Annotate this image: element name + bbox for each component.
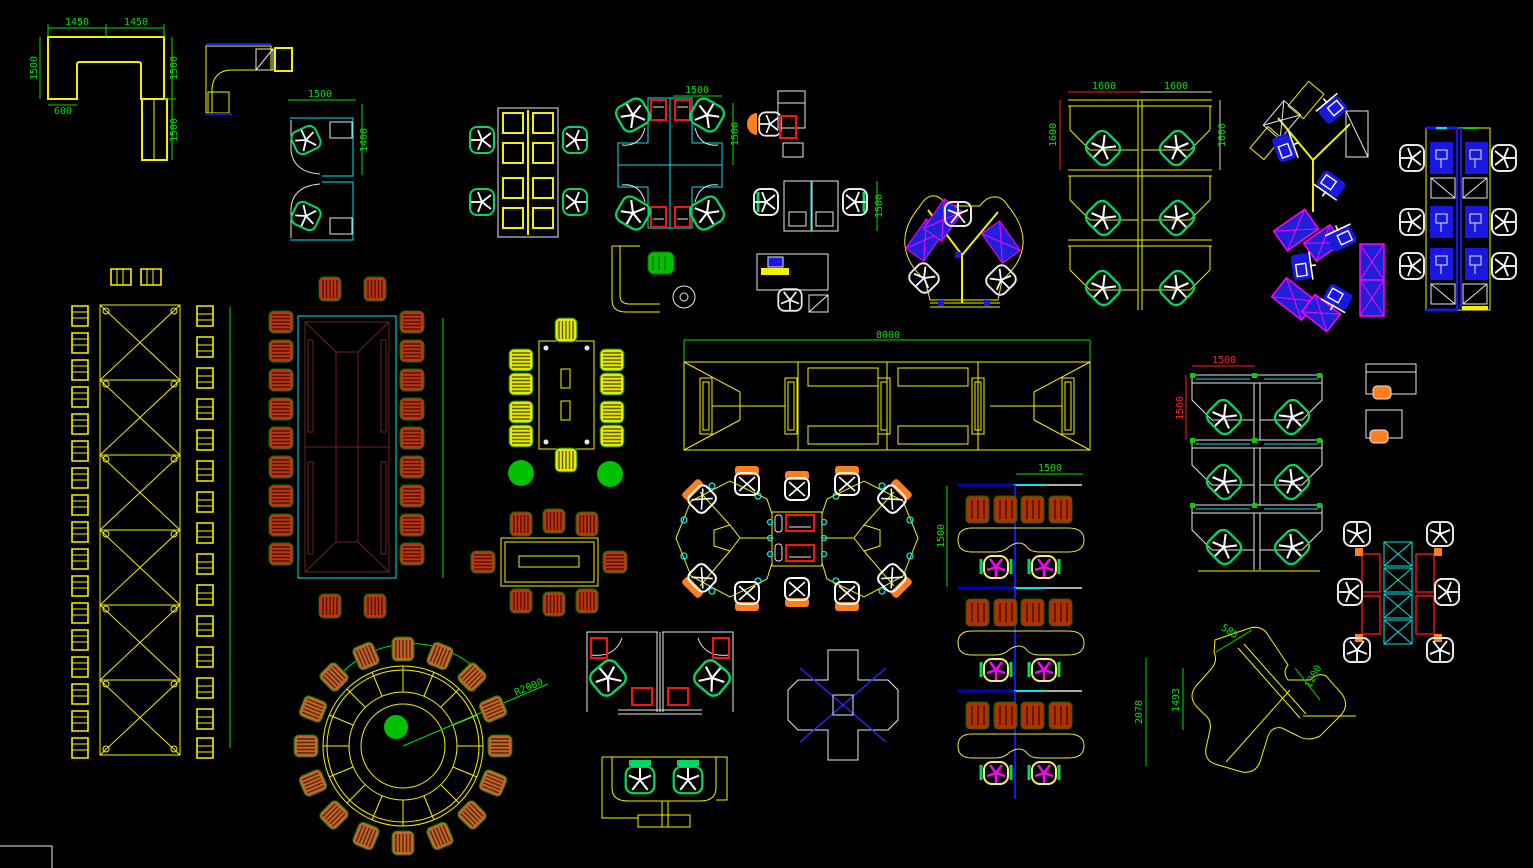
dimension-label: 1600 [1217, 123, 1228, 147]
bench-chair[interactable] [111, 269, 131, 285]
seat-row-right[interactable] [197, 306, 213, 758]
block-workstation-grid-6-white[interactable]: 1500 1500 [1175, 355, 1322, 571]
drawing-edge-line [0, 846, 52, 868]
dimension-label: 1200 [1303, 664, 1324, 690]
office-chair[interactable] [1029, 556, 1059, 578]
dimension-label: 1500 [1175, 396, 1186, 420]
dimension-label: 1500 [29, 56, 40, 80]
privacy-panels [1272, 209, 1384, 331]
dimension-label: 600 [54, 106, 72, 117]
office-chair[interactable] [687, 194, 727, 233]
dimension-label: 1500 [936, 524, 947, 548]
armchair[interactable] [1373, 386, 1391, 399]
dimension-label: 1500 [1212, 355, 1236, 366]
truss-bracing [100, 305, 180, 755]
block-l-workstation-pair[interactable]: 1500 1400 [288, 89, 370, 240]
cabinets [966, 496, 1072, 523]
block-single-desk[interactable] [747, 91, 805, 157]
office-chair[interactable] [289, 200, 323, 233]
dimension-label: 1500 [874, 194, 885, 218]
block-u-shaped-desk[interactable]: 1450 1450 1500 600 1500 1500 [29, 17, 180, 160]
office-chair[interactable] [906, 260, 941, 295]
dimension-label: 585 [1219, 622, 1240, 641]
dimension-label: 1500 [730, 122, 741, 146]
pod-center-unit [768, 512, 827, 566]
block-truss-with-seating[interactable] [72, 269, 230, 758]
office-chair[interactable] [563, 189, 587, 215]
block-reception-l-desk[interactable] [206, 44, 292, 114]
block-y-cluster-blue[interactable] [905, 196, 1023, 307]
block-reception-counter[interactable] [612, 246, 695, 312]
office-chair[interactable] [674, 767, 703, 793]
block-conference-yellow[interactable] [508, 318, 624, 487]
pod-chair[interactable] [735, 582, 759, 611]
dimension: 1500 [874, 181, 885, 231]
dimension: 585 1200 2078 1493 [1134, 622, 1324, 766]
office-chair[interactable] [563, 127, 587, 153]
dimension-label: 1500 [1038, 463, 1062, 474]
plant [508, 460, 534, 486]
chair-cushion [747, 113, 757, 135]
office-chair[interactable] [1313, 90, 1350, 126]
office-chair[interactable] [626, 767, 655, 793]
dimension-label: 2078 [1134, 700, 1145, 724]
dimension-label: 1600 [1092, 81, 1116, 92]
dimension-label: R2000 [513, 677, 545, 699]
chair-seat [648, 252, 674, 274]
dimension: 1500 1500 [673, 85, 741, 165]
block-u-workstation-pair[interactable] [602, 757, 727, 827]
dimension-label: 1500 [169, 118, 180, 142]
cad-viewport: 1450 1450 1500 600 1500 1500 1500 1400 [0, 0, 1533, 868]
armchair[interactable] [1370, 430, 1388, 443]
cad-canvas: 1450 1450 1500 600 1500 1500 1500 1400 [0, 0, 1533, 868]
dimension-label: 1600 [1048, 123, 1059, 147]
office-chair[interactable] [1311, 169, 1348, 205]
dimension-label: 1400 [359, 128, 370, 152]
office-chair[interactable] [470, 189, 494, 215]
office-chair[interactable] [289, 124, 323, 157]
office-chair[interactable] [613, 96, 653, 135]
dimension-label: 8000 [876, 330, 900, 341]
plant [597, 461, 623, 487]
block-cross-workstation[interactable]: 1500 1500 [613, 85, 741, 232]
office-chair[interactable] [1272, 397, 1313, 438]
dimension-label: 1493 [1171, 688, 1182, 712]
dimension-label: 1500 [169, 56, 180, 80]
block-cross-table[interactable] [788, 650, 898, 760]
chairs[interactable] [1083, 128, 1198, 309]
block-pentagon-cluster[interactable] [1272, 209, 1384, 331]
block-workstation-rows[interactable]: 1500 1500 [936, 463, 1084, 799]
block-facing-desks[interactable]: 1500 [754, 181, 885, 231]
block-desk-computer[interactable] [757, 254, 828, 312]
pod-chair[interactable] [735, 466, 759, 495]
grommets [938, 252, 990, 306]
dimension-label: 1500 [685, 85, 709, 96]
desks [1430, 142, 1488, 304]
pod-chair[interactable] [785, 578, 809, 607]
dimension-label: 1450 [65, 17, 89, 28]
block-boardroom-table[interactable] [269, 277, 443, 618]
plant [384, 715, 408, 739]
pod-chair[interactable] [785, 471, 809, 500]
block-long-conference-table[interactable]: 8000 [684, 330, 1090, 450]
monitor [768, 257, 783, 267]
block-conference-orange[interactable] [471, 509, 627, 616]
block-y-cluster-yellow[interactable] [1250, 81, 1368, 212]
chairs[interactable] [471, 509, 627, 616]
keyboard [761, 268, 789, 275]
dimension: 8000 [684, 330, 1090, 362]
block-y-desk-dimensioned[interactable]: 585 1200 2078 1493 [1134, 622, 1356, 772]
office-chair[interactable] [1204, 397, 1245, 438]
office-chair[interactable] [687, 96, 727, 135]
block-lounge-chairs[interactable] [1366, 364, 1416, 443]
office-chair[interactable] [613, 194, 653, 233]
dimension-label: 1500 [308, 89, 332, 100]
block-double-pedestal-desk[interactable] [470, 108, 587, 237]
seat-row-left[interactable] [72, 306, 88, 758]
office-chair[interactable] [587, 657, 629, 699]
block-workstation-grid-6[interactable]: 1600 1600 1600 1600 [1048, 81, 1228, 310]
dimension: 1450 1450 1500 600 1500 1500 [29, 17, 180, 160]
block-workstation-column-6[interactable] [1400, 128, 1516, 310]
block-partition-workstations[interactable] [587, 632, 733, 714]
dimension-label: 1600 [1164, 81, 1188, 92]
block-waiting-cluster[interactable] [1338, 522, 1459, 662]
block-double-pod-cluster[interactable] [676, 466, 918, 611]
office-chair[interactable] [778, 289, 801, 311]
dimension-label: 1450 [124, 17, 148, 28]
chairs[interactable] [509, 318, 624, 472]
office-chair[interactable] [470, 127, 494, 153]
dimension: 1500 1400 [288, 89, 370, 175]
bench-chair[interactable] [141, 269, 161, 285]
block-round-table[interactable]: R2000 [294, 637, 548, 855]
office-chair[interactable] [981, 556, 1011, 578]
